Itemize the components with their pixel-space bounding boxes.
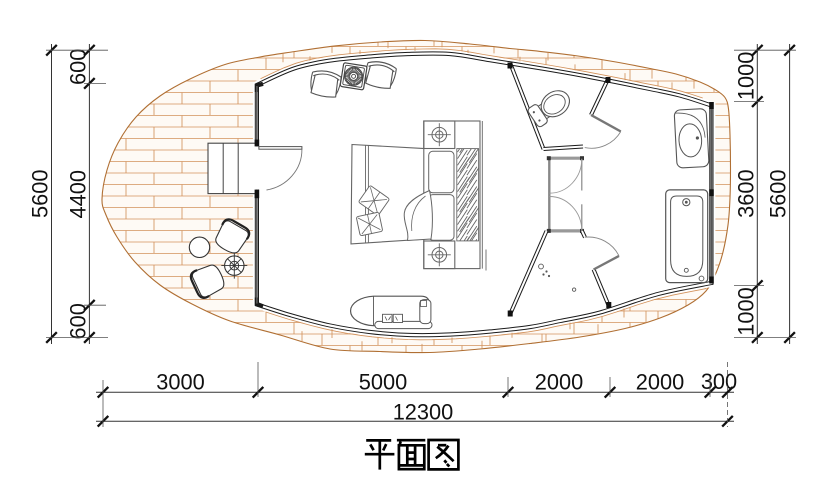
svg-text:2000: 2000 xyxy=(636,370,685,395)
svg-text:1000: 1000 xyxy=(733,287,758,336)
svg-text:5600: 5600 xyxy=(28,170,53,219)
svg-text:5600: 5600 xyxy=(766,170,791,219)
svg-text:2000: 2000 xyxy=(535,370,584,395)
svg-text:600: 600 xyxy=(65,303,90,339)
svg-text:3000: 3000 xyxy=(156,370,205,395)
svg-text:5000: 5000 xyxy=(359,370,408,395)
svg-text:4400: 4400 xyxy=(65,170,90,219)
svg-text:1000: 1000 xyxy=(733,52,758,101)
svg-text:3600: 3600 xyxy=(733,169,758,218)
svg-text:12300: 12300 xyxy=(393,399,454,424)
svg-text:300: 300 xyxy=(701,369,737,394)
svg-text:600: 600 xyxy=(65,49,90,85)
